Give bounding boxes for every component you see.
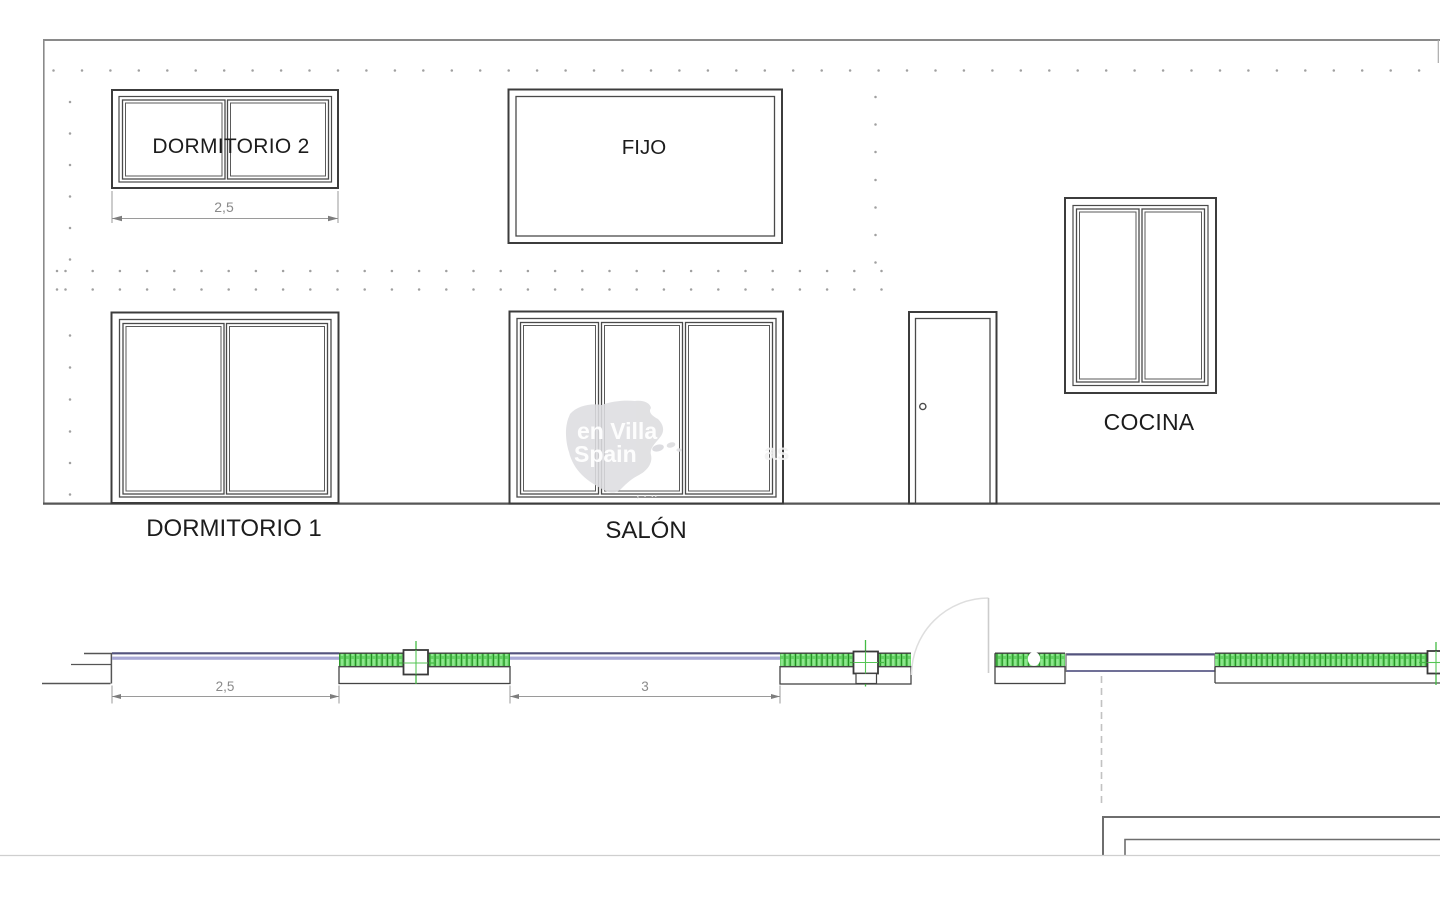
svg-text:SALÓN: SALÓN xyxy=(605,517,686,544)
svg-text:DORMITORIO 1: DORMITORIO 1 xyxy=(146,515,322,542)
svg-text:2,5: 2,5 xyxy=(214,199,234,215)
svg-text:2,5: 2,5 xyxy=(216,679,235,694)
svg-text:3: 3 xyxy=(641,679,649,694)
svg-text:COCINA: COCINA xyxy=(1104,409,1195,435)
svg-text:Spain: Spain xyxy=(574,441,637,467)
svg-text:as: as xyxy=(764,439,790,465)
svg-text:DORMITORIO 2: DORMITORIO 2 xyxy=(152,135,309,158)
svg-text:, . ..: , . .. xyxy=(636,485,658,500)
svg-text:FIJO: FIJO xyxy=(622,136,666,159)
